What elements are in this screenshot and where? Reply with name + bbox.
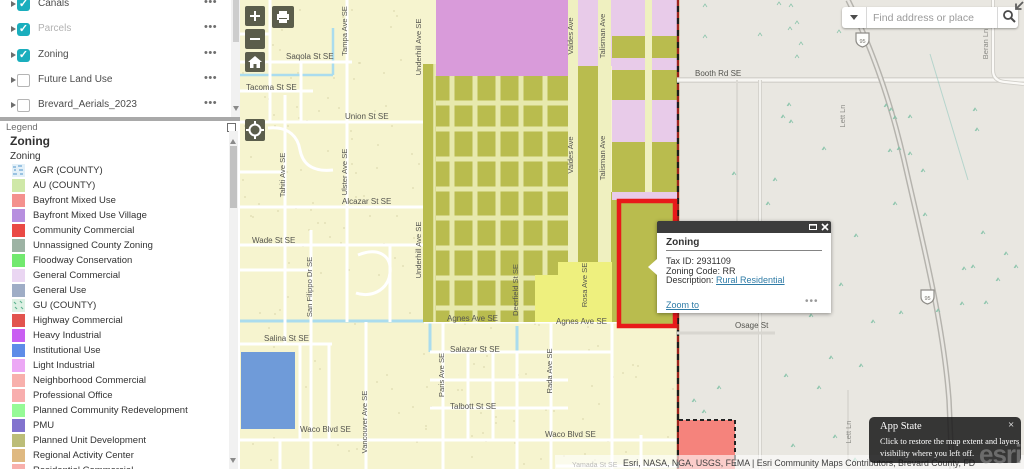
svg-text:Talisman Ave: Talisman Ave: [598, 14, 607, 59]
svg-text:Saqola St SE: Saqola St SE: [286, 52, 334, 61]
svg-text:Rosa Ave SE: Rosa Ave SE: [580, 263, 589, 308]
svg-text:Salazar St SE: Salazar St SE: [450, 345, 500, 354]
svg-text:Waco Blvd SE: Waco Blvd SE: [300, 425, 351, 434]
svg-text:Waco Blvd SE: Waco Blvd SE: [545, 430, 596, 439]
svg-text:Tampa Ave SE: Tampa Ave SE: [340, 6, 349, 56]
svg-text:Underhill Ave SE: Underhill Ave SE: [414, 222, 423, 279]
svg-text:Beran Ln: Beran Ln: [981, 29, 990, 59]
svg-text:Alcazar St SE: Alcazar St SE: [342, 197, 391, 206]
svg-text:Ulster Ave SE: Ulster Ave SE: [340, 149, 349, 196]
svg-text:Agnes Ave SE: Agnes Ave SE: [447, 314, 498, 323]
svg-text:Paris Ave SE: Paris Ave SE: [437, 353, 446, 397]
svg-text:Talbott St SE: Talbott St SE: [450, 402, 496, 411]
svg-text:Valdes Ave: Valdes Ave: [566, 17, 575, 54]
svg-text:Lett Ln: Lett Ln: [844, 421, 853, 444]
svg-text:Deerfield St SE: Deerfield St SE: [511, 264, 520, 316]
svg-text:Wade St SE: Wade St SE: [252, 236, 295, 245]
svg-text:95: 95: [859, 39, 865, 45]
svg-text:Tahiti Ave SE: Tahiti Ave SE: [278, 153, 287, 198]
svg-text:Underhill Ave SE: Underhill Ave SE: [414, 19, 423, 76]
svg-text:Vancouver Ave SE: Vancouver Ave SE: [360, 391, 369, 454]
svg-text:Booth Rd SE: Booth Rd SE: [695, 69, 741, 78]
svg-text:Osage St: Osage St: [735, 321, 769, 330]
svg-text:Agnes Ave SE: Agnes Ave SE: [556, 317, 607, 326]
svg-text:Valdes Ave: Valdes Ave: [566, 136, 575, 173]
svg-text:Tacoma St SE: Tacoma St SE: [246, 83, 297, 92]
svg-text:Talisman Ave: Talisman Ave: [598, 136, 607, 181]
svg-text:Rada Ave SE: Rada Ave SE: [545, 348, 554, 393]
svg-text:San Filippo Dr SE: San Filippo Dr SE: [305, 257, 314, 317]
svg-text:95: 95: [924, 296, 930, 302]
svg-text:Salina St SE: Salina St SE: [264, 334, 309, 343]
svg-text:Union St SE: Union St SE: [345, 112, 389, 121]
svg-text:Lett Ln: Lett Ln: [838, 105, 847, 128]
